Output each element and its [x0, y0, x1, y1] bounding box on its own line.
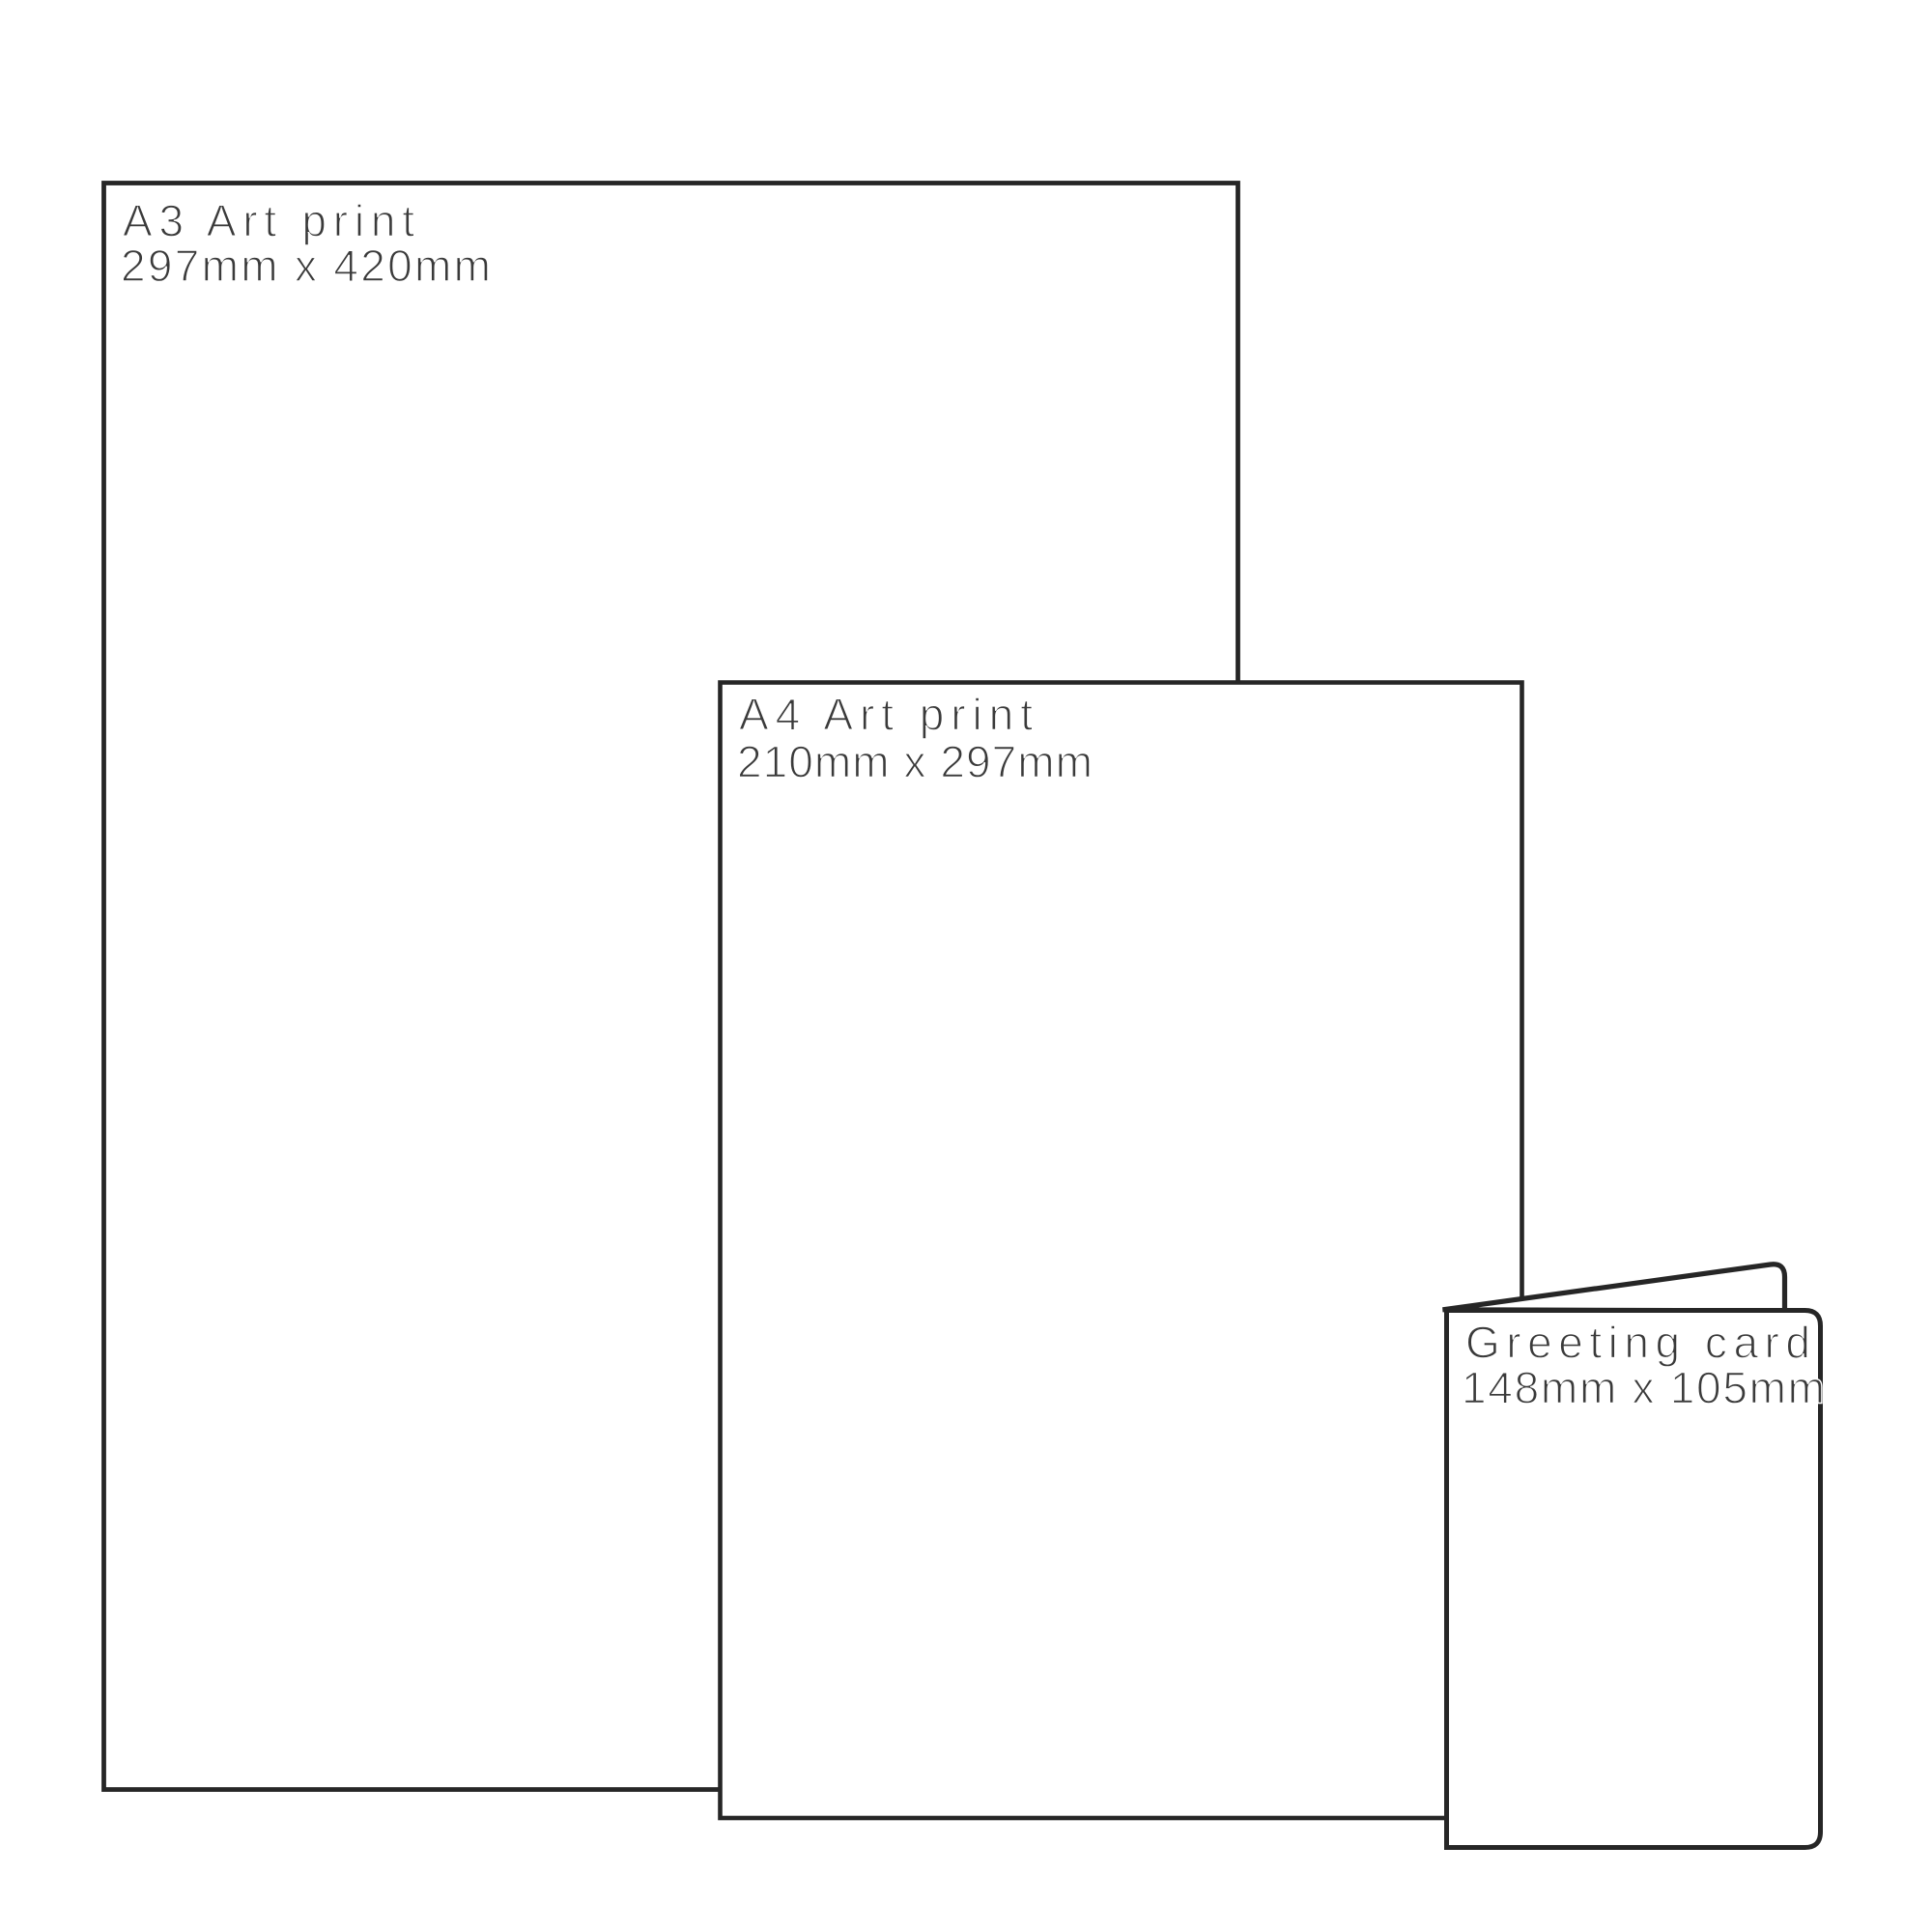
svg-text:297mm x 420mm: 297mm x 420mm: [121, 241, 491, 291]
svg-text:A3 Art print: A3 Art print: [123, 196, 414, 246]
svg-text:A4 Art print: A4 Art print: [739, 690, 1033, 740]
svg-text:148mm x 105mm: 148mm x 105mm: [1462, 1363, 1825, 1413]
svg-text:210mm x 297mm: 210mm x 297mm: [737, 737, 1093, 787]
